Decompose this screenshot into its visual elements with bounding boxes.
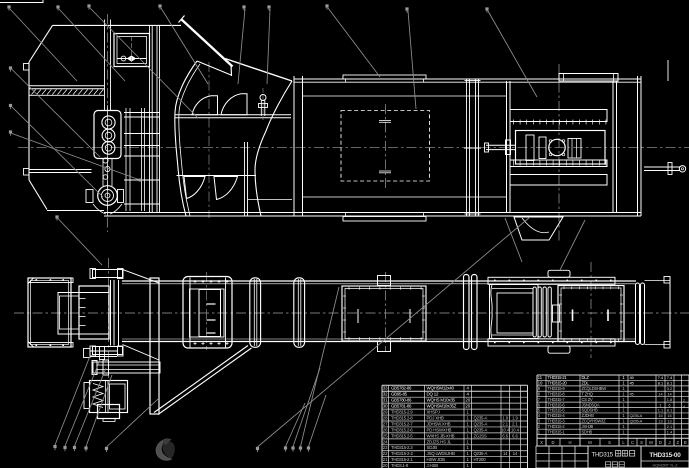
- svg-text:33: 33: [383, 386, 388, 391]
- svg-text:THD315-20: THD315-20: [548, 381, 568, 386]
- svg-text:THD315-00: THD315-00: [649, 452, 681, 459]
- svg-text:JSNDSQA: JSNDSQA: [582, 402, 600, 407]
- svg-text:THD315-2.9: THD315-2.9: [391, 410, 413, 415]
- svg-text:10.4: 10.4: [501, 427, 510, 432]
- svg-text:J HSB: J HSB: [427, 463, 439, 468]
- svg-text:GB5780-86: GB5780-86: [391, 398, 412, 403]
- svg-text:THD315-5: THD315-5: [548, 408, 566, 413]
- svg-text:2.1: 2.1: [502, 421, 508, 426]
- svg-text:S: S: [608, 440, 611, 445]
- svg-text:WQHSM12x40: WQHSM12x40: [427, 386, 455, 391]
- svg-text:21: 21: [383, 457, 388, 462]
- svg-text:THD315-8: THD315-8: [548, 391, 566, 396]
- svg-text:X: X: [540, 440, 543, 445]
- svg-text:THD315-7: THD315-7: [548, 397, 566, 402]
- svg-text:23: 23: [383, 445, 388, 450]
- svg-text:1: 1: [659, 402, 661, 407]
- svg-text:M: M: [588, 440, 592, 445]
- svg-text:1.9: 1.9: [512, 415, 518, 420]
- svg-text:1.4: 1.4: [667, 429, 673, 434]
- svg-text:22: 22: [383, 451, 388, 456]
- svg-text:CS ZV: CS ZV: [582, 397, 594, 402]
- svg-text:SDJB: SDJB: [427, 445, 438, 450]
- svg-text:THD315-2: THD315-2: [548, 424, 566, 429]
- svg-text:28: 28: [383, 415, 388, 420]
- svg-text:13: 13: [658, 419, 662, 424]
- svg-text:THD315.2-6: THD315.2-6: [391, 427, 413, 432]
- svg-text:THD3.1-9: THD3.1-9: [391, 463, 409, 468]
- svg-text:8.1: 8.1: [667, 408, 672, 413]
- svg-text:14: 14: [513, 451, 518, 456]
- svg-text:THD315.2-5: THD315.2-5: [391, 433, 413, 438]
- svg-text:WQHS M10x35: WQHS M10x35: [427, 398, 456, 403]
- svg-text:Q235-A: Q235-A: [474, 427, 488, 432]
- svg-text:2.1: 2.1: [512, 421, 518, 426]
- svg-text:20: 20: [465, 404, 470, 409]
- svg-text:THD315-1: THD315-1: [548, 429, 566, 434]
- svg-text:D: D: [659, 440, 662, 445]
- svg-text:M: M: [649, 440, 653, 445]
- svg-text:THD315-4: THD315-4: [548, 413, 566, 418]
- svg-text:32: 32: [383, 392, 388, 397]
- svg-text:THD315.2-8: THD315.2-8: [391, 415, 413, 420]
- svg-text:6.6: 6.6: [512, 433, 518, 438]
- svg-text:Q235-A: Q235-A: [474, 415, 488, 420]
- svg-text:ZJDHB: ZJDHB: [582, 413, 595, 418]
- svg-text:8.1: 8.1: [658, 381, 663, 386]
- svg-text:13: 13: [667, 419, 671, 424]
- svg-text:1.1: 1.1: [658, 408, 663, 413]
- svg-text:3.2: 3.2: [667, 386, 672, 391]
- svg-text:JSQ LWDSJHB: JSQ LWDSJHB: [427, 451, 455, 456]
- svg-text:30: 30: [383, 404, 388, 409]
- svg-text:THD315-21: THD315-21: [548, 375, 568, 380]
- svg-text:27: 27: [383, 421, 388, 426]
- svg-text:D: D: [551, 440, 554, 445]
- svg-text:Z: Z: [676, 440, 679, 445]
- svg-text:ZCQYHSW3Z: ZCQYHSW3Z: [582, 419, 607, 424]
- svg-text:DQ 12: DQ 12: [427, 392, 439, 397]
- svg-text:THD315-2.3: THD315-2.3: [391, 445, 413, 450]
- svg-text:HQWZRT YL-Z: HQWZRT YL-Z: [653, 463, 679, 468]
- svg-text:7.4: 7.4: [658, 375, 664, 380]
- svg-text:31: 31: [383, 398, 388, 403]
- svg-text:PD HSWXHB: PD HSWXHB: [427, 427, 452, 432]
- svg-text:THD315.2-7: THD315.2-7: [391, 421, 413, 426]
- svg-text:10: 10: [538, 381, 543, 386]
- svg-text:6.6: 6.6: [502, 433, 508, 438]
- svg-text:THD315-3: THD315-3: [548, 419, 566, 424]
- svg-text:26: 26: [383, 427, 388, 432]
- svg-text:29: 29: [383, 410, 388, 415]
- svg-text:GB95-85: GB95-85: [391, 392, 408, 397]
- svg-text:H: H: [568, 440, 571, 445]
- svg-text:14: 14: [503, 451, 508, 456]
- svg-text:20: 20: [383, 463, 388, 468]
- svg-text:J: J: [668, 440, 670, 445]
- svg-text:THD315: THD315: [592, 452, 614, 459]
- svg-text:Q235-A: Q235-A: [630, 413, 643, 418]
- svg-text:THD315-9: THD315-9: [548, 386, 566, 391]
- svg-text:B: B: [684, 440, 687, 445]
- svg-text:T ZHQ: T ZHQ: [582, 391, 593, 396]
- svg-text:11: 11: [538, 375, 543, 380]
- svg-text:JDHSW.XHB: JDHSW.XHB: [427, 421, 451, 426]
- svg-text:Q235-A: Q235-A: [630, 419, 643, 424]
- svg-text:15: 15: [658, 413, 662, 418]
- svg-text:C: C: [631, 440, 634, 445]
- svg-text:25: 25: [383, 433, 388, 438]
- svg-text:Q235-A: Q235-A: [474, 421, 488, 426]
- svg-text:1.9: 1.9: [502, 415, 508, 420]
- svg-text:ZDL: ZDL: [582, 381, 590, 386]
- svg-text:THD315-6: THD315-6: [548, 402, 566, 407]
- svg-text:PDJ XHB: PDJ XHB: [427, 415, 444, 420]
- svg-text:4: 4: [683, 405, 685, 409]
- svg-text:THD315-2.1: THD315-2.1: [391, 457, 413, 462]
- svg-text:20: 20: [465, 398, 470, 403]
- svg-text:JSHJB: JSHJB: [582, 424, 594, 429]
- svg-text:WQHSM10x35Z: WQHSM10x35Z: [427, 404, 457, 409]
- svg-text:GB5781-86: GB5781-86: [391, 404, 412, 409]
- svg-text:ZDJZS.HS JL: ZDJZS.HS JL: [427, 439, 452, 444]
- svg-text:HT200: HT200: [474, 457, 487, 462]
- svg-text:ZG2SS: ZG2SS: [474, 433, 487, 438]
- svg-text:GB5782-86: GB5782-86: [391, 386, 412, 391]
- svg-text:HSW JDB: HSW JDB: [427, 457, 446, 462]
- svg-text:24: 24: [383, 439, 388, 444]
- svg-text:2.1: 2.1: [667, 424, 672, 429]
- svg-text:7.4: 7.4: [667, 375, 673, 380]
- svg-text:XHSPJ: XHSPJ: [427, 410, 440, 415]
- svg-text:10.4: 10.4: [511, 427, 520, 432]
- svg-text:6: 6: [668, 402, 670, 407]
- svg-text:WXHS JB-XHB: WXHS JB-XHB: [427, 433, 455, 438]
- svg-text:SDHB: SDHB: [582, 429, 593, 434]
- svg-text:SQDSHB: SQDSHB: [582, 408, 599, 413]
- svg-text:ZCQLDSHBW: ZCQLDSHBW: [582, 386, 607, 391]
- svg-text:S: S: [640, 440, 643, 445]
- svg-text:15: 15: [667, 413, 671, 418]
- svg-text:Q235-A: Q235-A: [474, 451, 488, 456]
- svg-text:1.8: 1.8: [667, 397, 672, 402]
- svg-text:DLZ: DLZ: [582, 375, 590, 380]
- svg-text:THD315-2-2: THD315-2-2: [391, 451, 413, 456]
- svg-text:8.1: 8.1: [667, 381, 672, 386]
